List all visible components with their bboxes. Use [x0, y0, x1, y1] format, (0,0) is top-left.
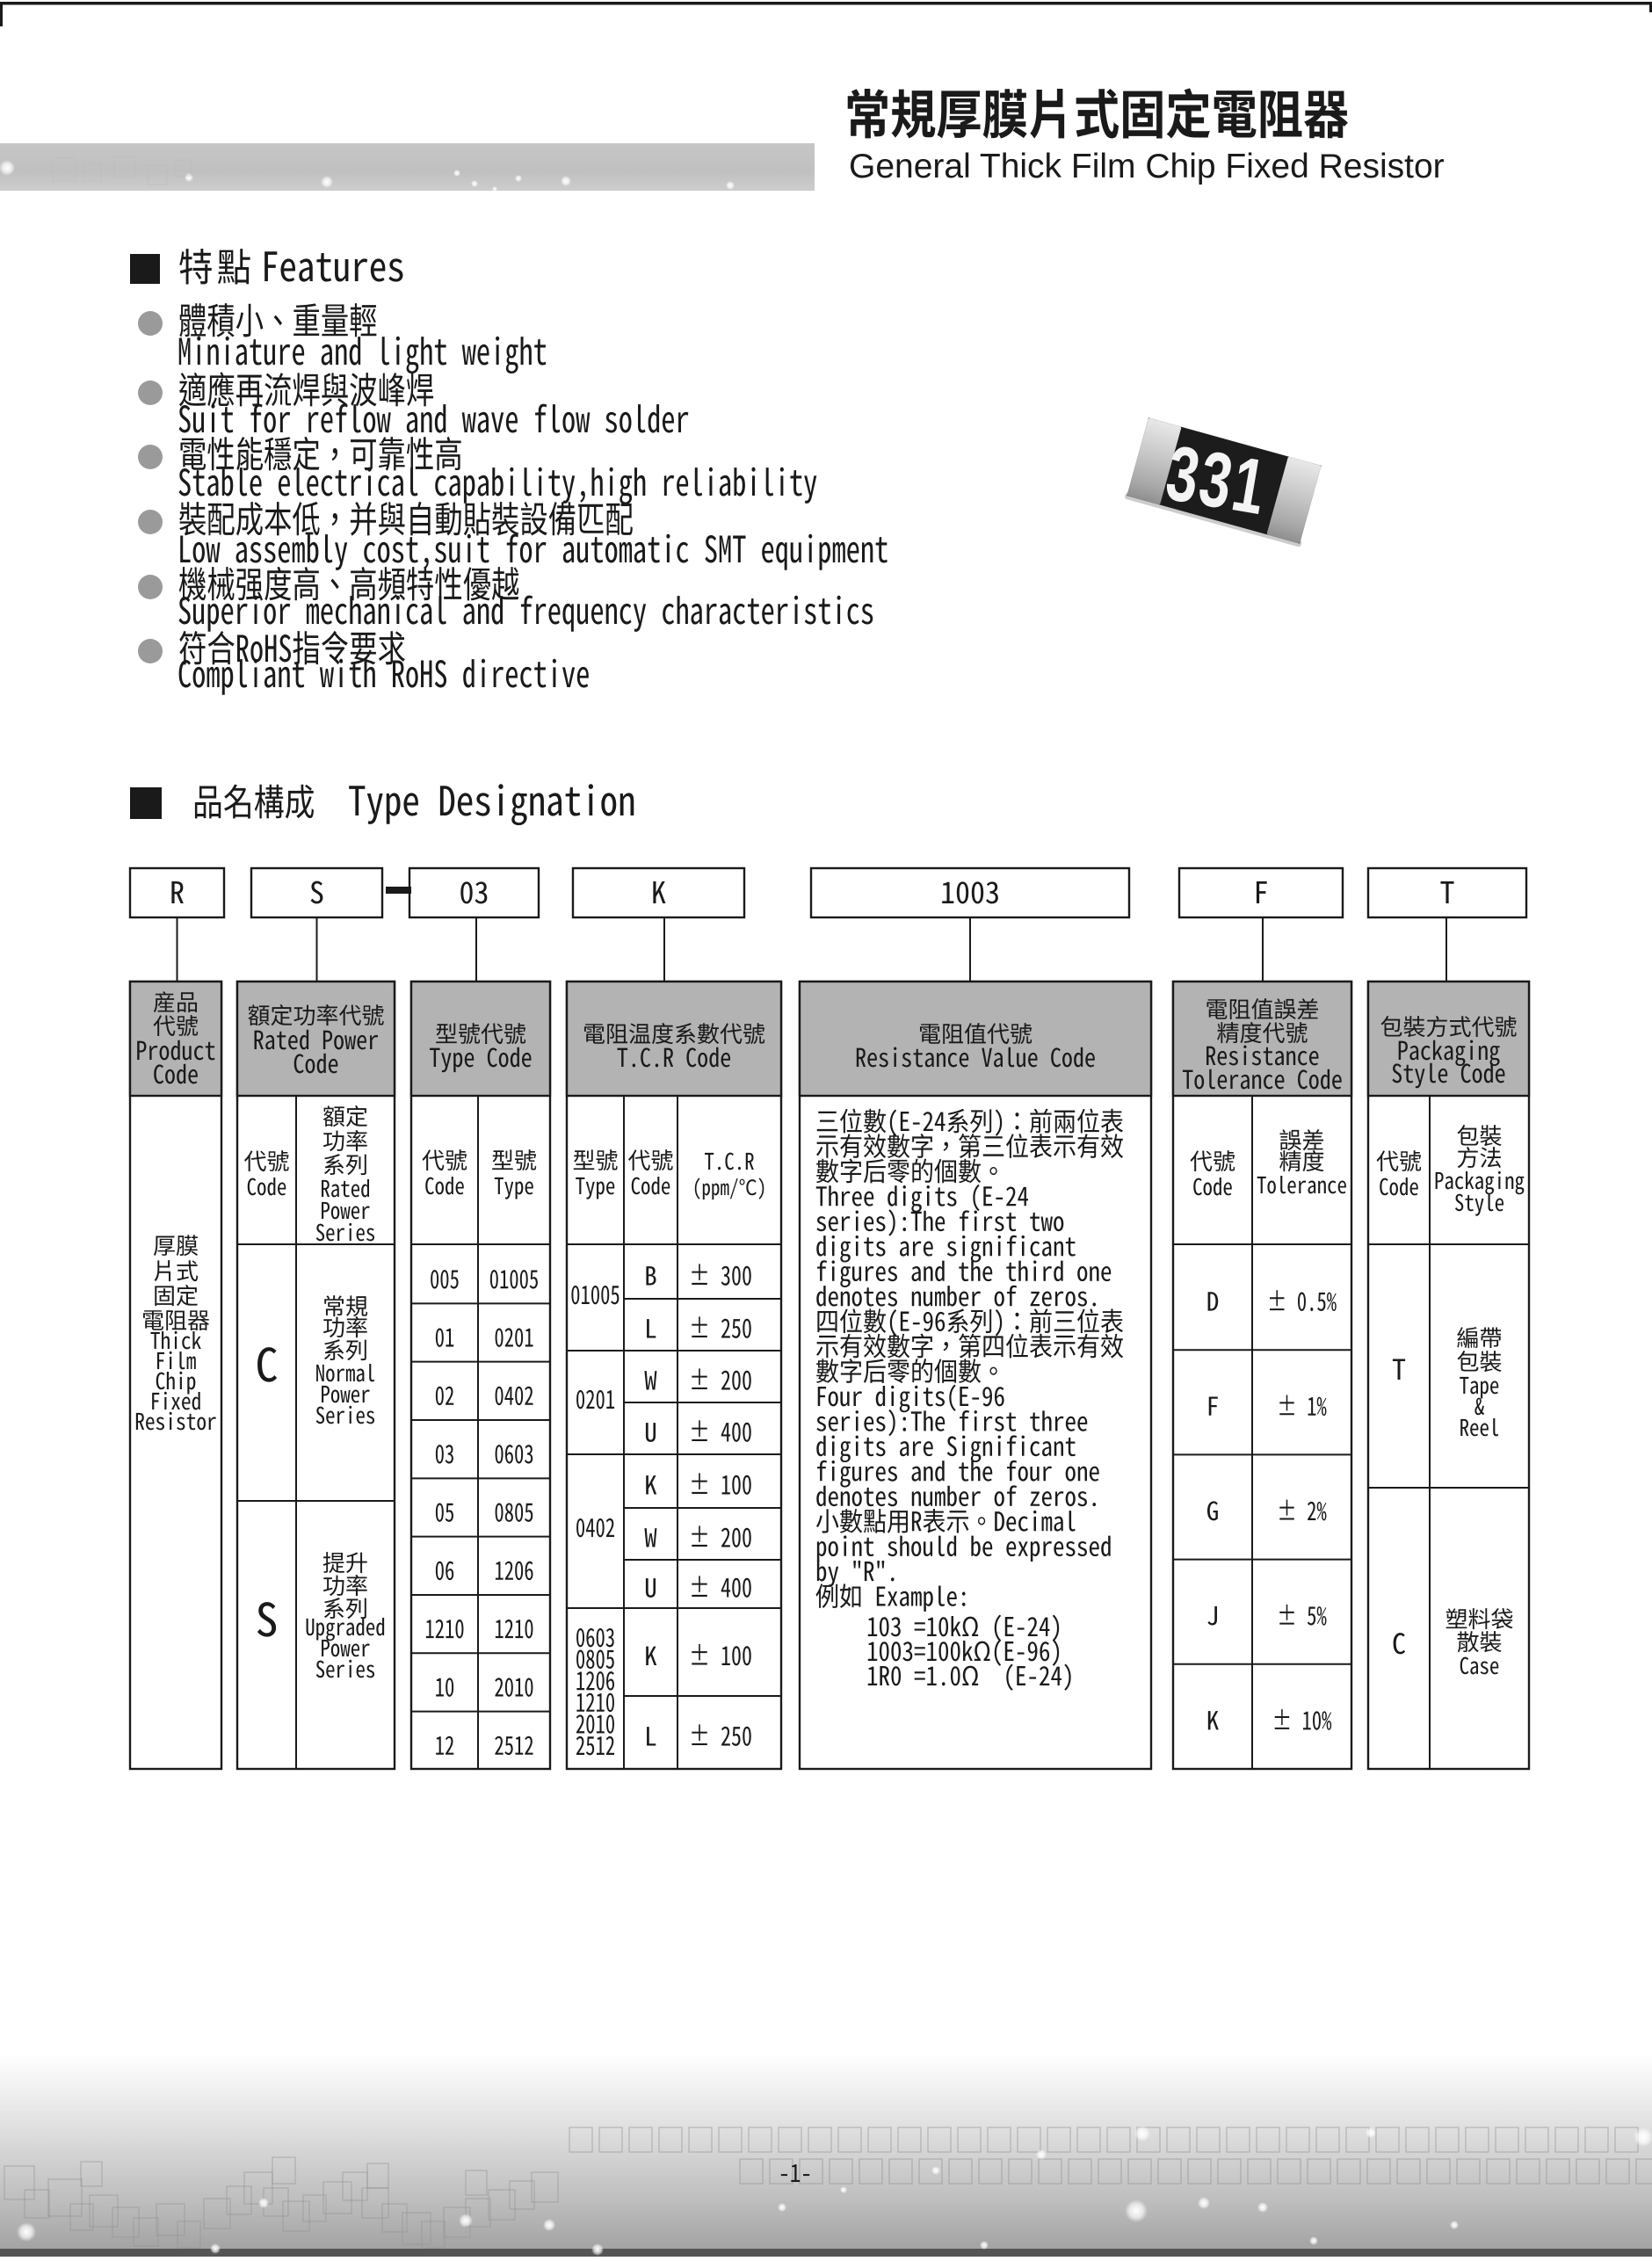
- svg-text:331: 331: [1161, 430, 1273, 532]
- svg-text:General Thick Film Chip Fixed: General Thick Film Chip Fixed Resistor: [849, 148, 1445, 185]
